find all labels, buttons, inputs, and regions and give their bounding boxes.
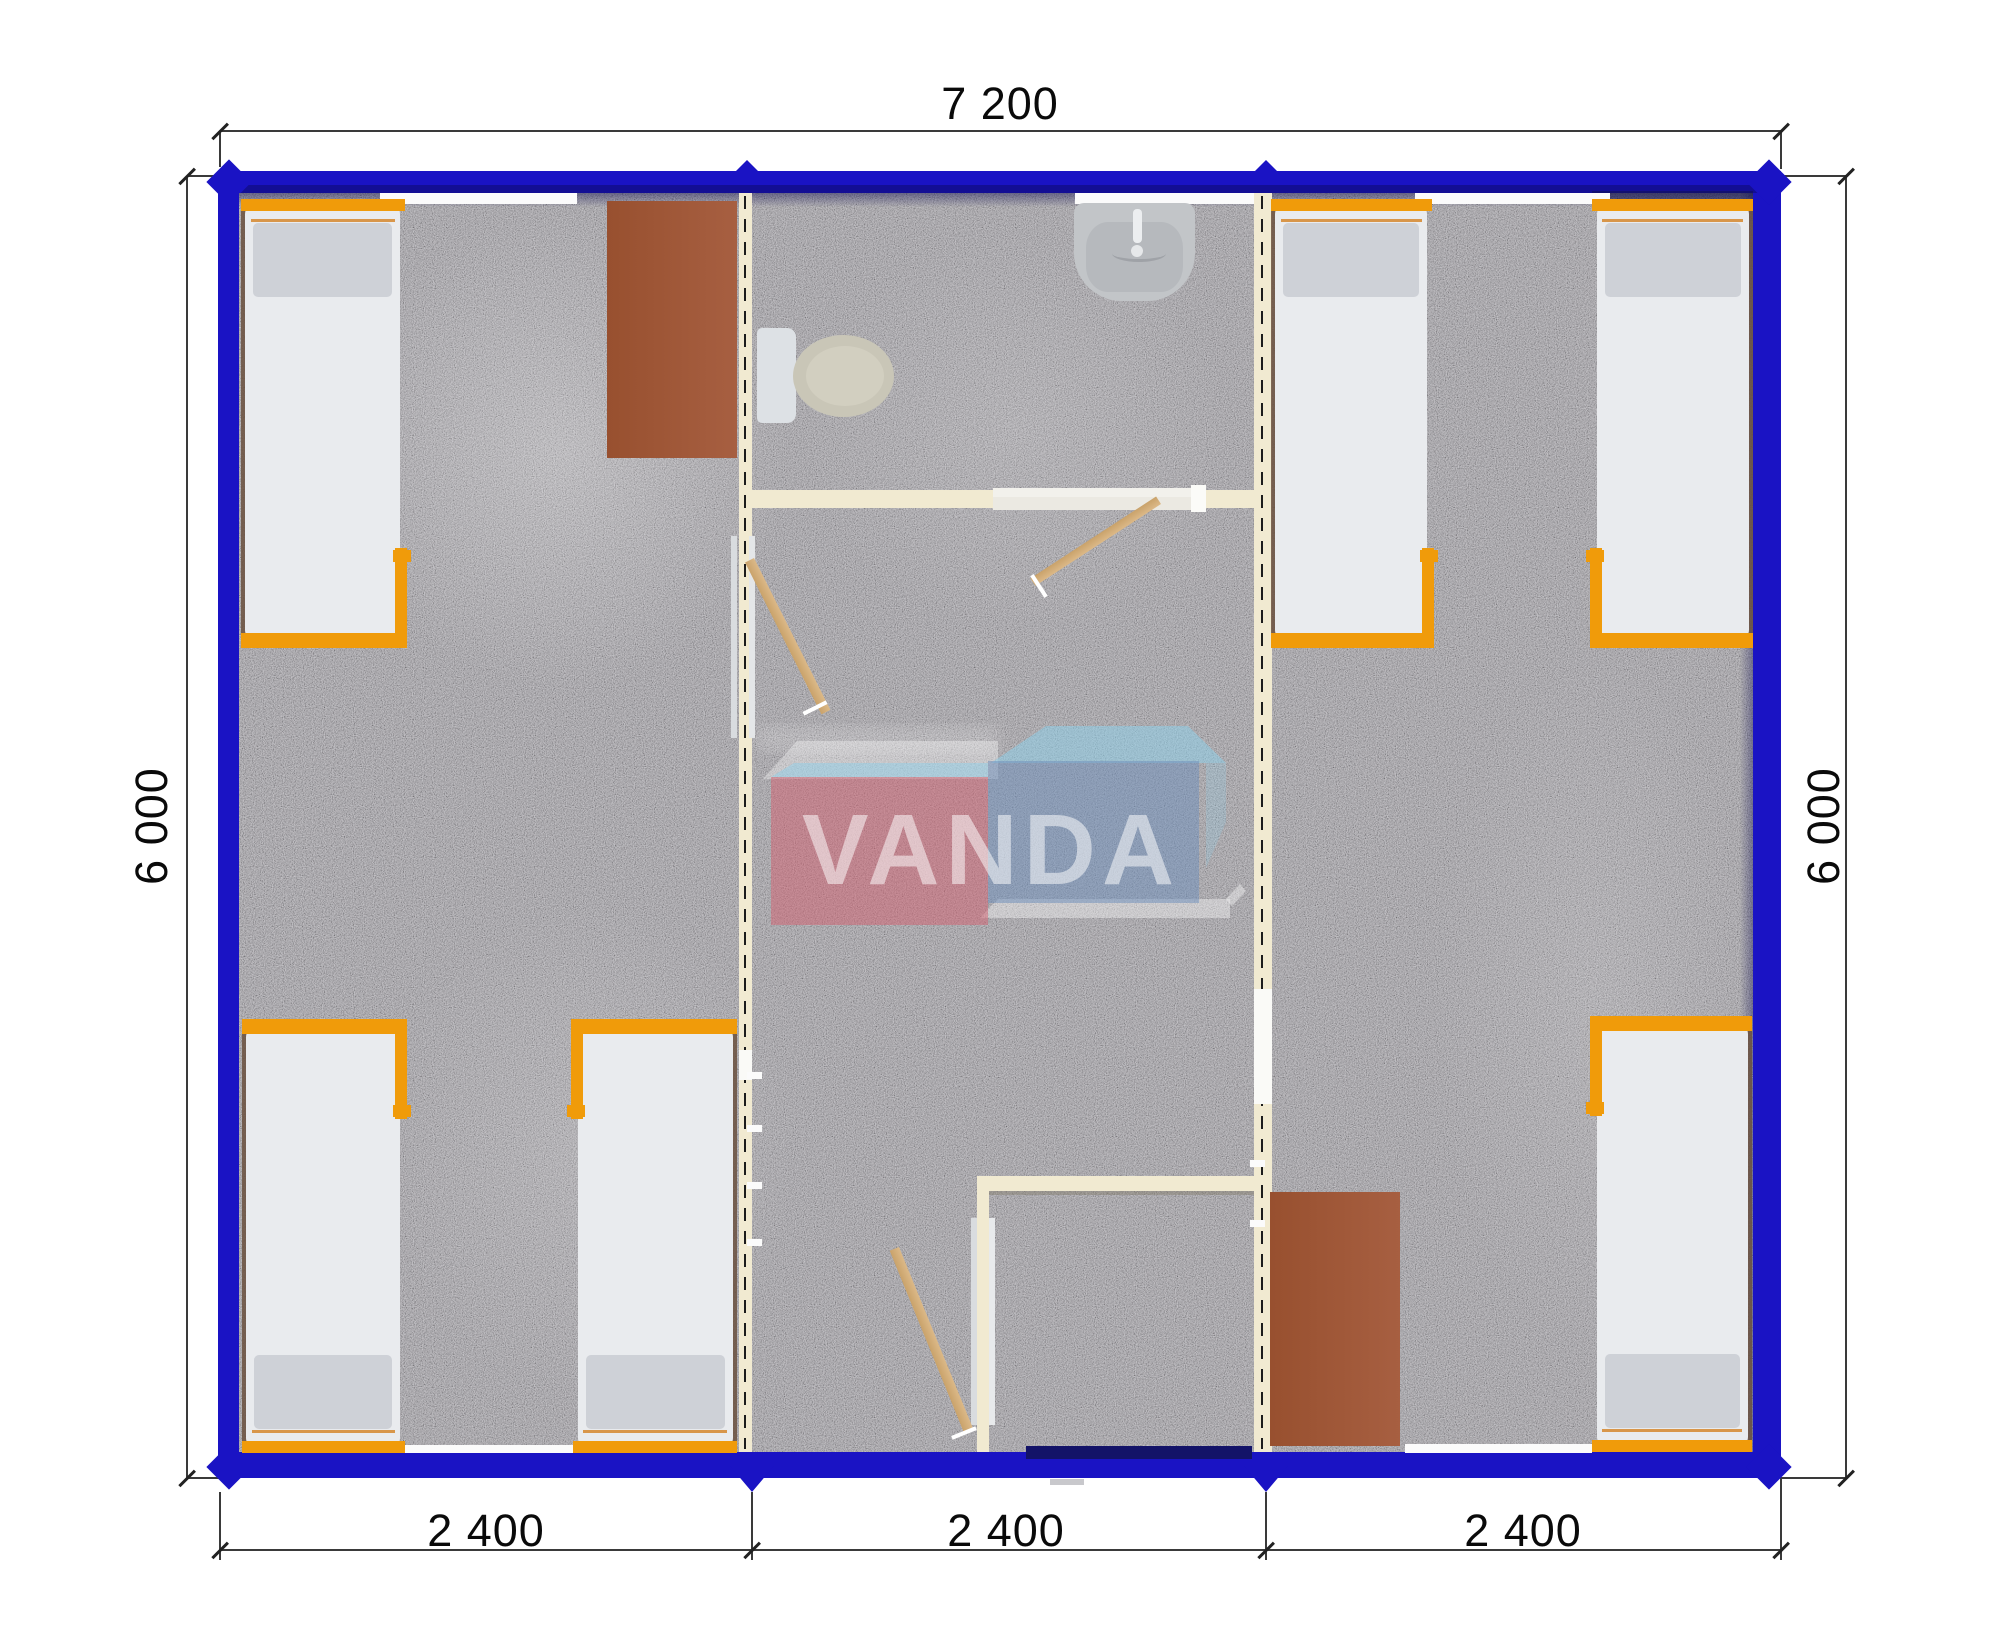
svg-text:VANDA: VANDA [802,794,1180,906]
